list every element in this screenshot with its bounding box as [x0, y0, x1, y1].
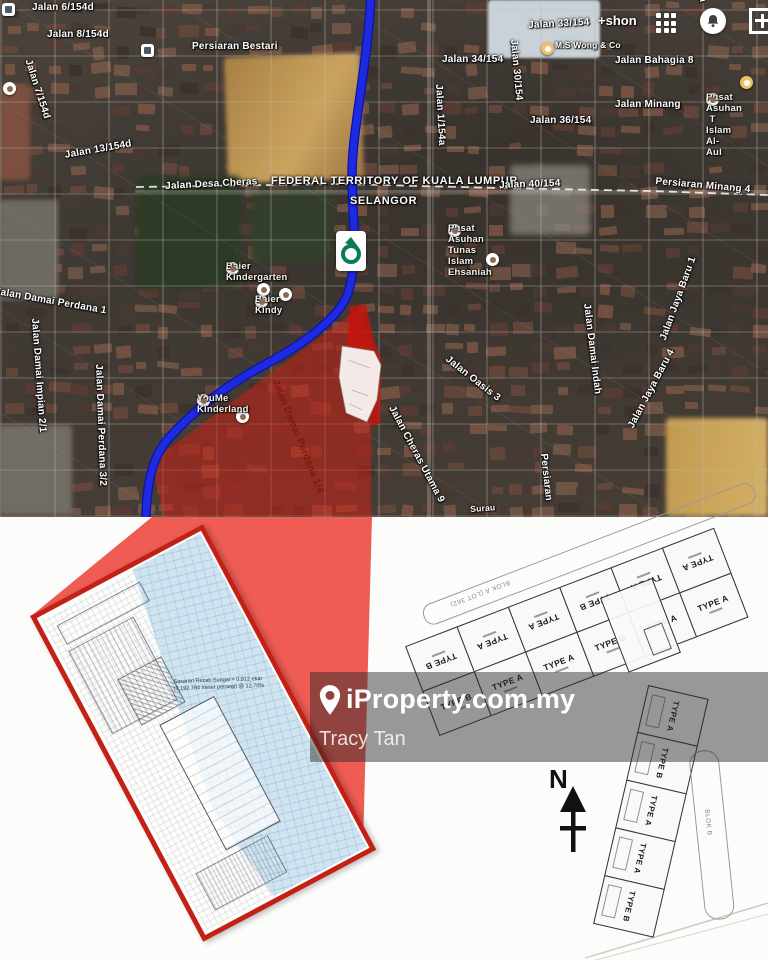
poi-marker[interactable]: [740, 76, 753, 89]
petronas-logo-icon: [339, 236, 363, 266]
map-label-jalan-36-154: Jalan 36/154: [530, 115, 591, 127]
map-label-jalan-6-154d: Jalan 6/154d: [32, 2, 94, 14]
iproperty-logo-text: iProperty.com.my: [346, 684, 575, 715]
map-label-jalan-40-154: Jalan 40/154: [499, 178, 561, 192]
map-label-pusat-asuhan-al-aul: Pusat Asuhan T Islam Al- Aul: [706, 93, 719, 106]
map-label-persiaran-bestari: Persiaran Bestari: [192, 41, 278, 53]
agent-name: Tracy Tan: [319, 728, 406, 751]
map-label-jalan-bahagia-8: Jalan Bahagia 8: [615, 55, 694, 67]
map-label-jalan-8-154d: Jalan 8/154d: [47, 29, 109, 41]
petronas-station-marker[interactable]: [336, 231, 366, 271]
map-overlays: [0, 0, 768, 517]
map-label-ms-wong-co: M.S Wong & Co: [555, 41, 621, 51]
notifications-button[interactable]: [700, 8, 726, 34]
north-label: N: [549, 764, 568, 794]
poi-marker[interactable]: [3, 82, 16, 95]
poi-square-marker[interactable]: [2, 3, 15, 16]
map-label-selangor: SELANGOR: [350, 195, 417, 208]
unit-type-label: TYPE B: [621, 889, 637, 922]
satellite-map[interactable]: Jalan 6/154dJalan 8/154dJalan 7/154dJala…: [0, 0, 768, 517]
north-arrow: N: [545, 756, 605, 866]
unit-type-label: TYPE A: [643, 795, 659, 828]
block-b-road-label: BLOK B: [703, 809, 713, 836]
map-label-jalan-minang: Jalan Minang: [615, 99, 681, 111]
account-label[interactable]: +shon: [598, 13, 637, 28]
poi-marker[interactable]: [279, 288, 292, 301]
add-button[interactable]: [749, 8, 768, 34]
highlighted-area-overlay: [152, 310, 371, 516]
map-label-baier-kindergarten: Baier Kindergarten: [226, 262, 239, 275]
map-label-surau: Surau: [470, 503, 496, 514]
map-label-baier-kindy: Baier Kindy: [255, 295, 268, 308]
poi-marker[interactable]: [486, 253, 499, 266]
map-label-jalan-34-154: Jalan 34/154: [442, 54, 503, 66]
poi-square-marker[interactable]: [141, 44, 154, 57]
unit-type-label: TYPE A: [632, 842, 648, 875]
apps-grid-icon[interactable]: [656, 13, 676, 33]
property-listing-image: Jalan 6/154dJalan 8/154dJalan 7/154dJala…: [0, 0, 768, 960]
bell-icon: [705, 13, 721, 29]
map-label-federal-territory: FEDERAL TERRITORY OF KUALA LUMPUR: [271, 175, 518, 188]
map-label-youme-kinderland: YouMe Kinderland: [197, 394, 210, 407]
site-plan-section: Sasaran Rezab Sungai = 0.912 ekar (3,192…: [0, 517, 768, 960]
watermark: iProperty.com.my Tracy Tan: [310, 672, 768, 762]
poi-marker[interactable]: [541, 42, 554, 55]
iproperty-pin-icon: [318, 684, 342, 716]
map-label-pusat-asuhan-tunas: Pusat Asuhan Tunas Islam Ehsaniah: [448, 224, 461, 237]
